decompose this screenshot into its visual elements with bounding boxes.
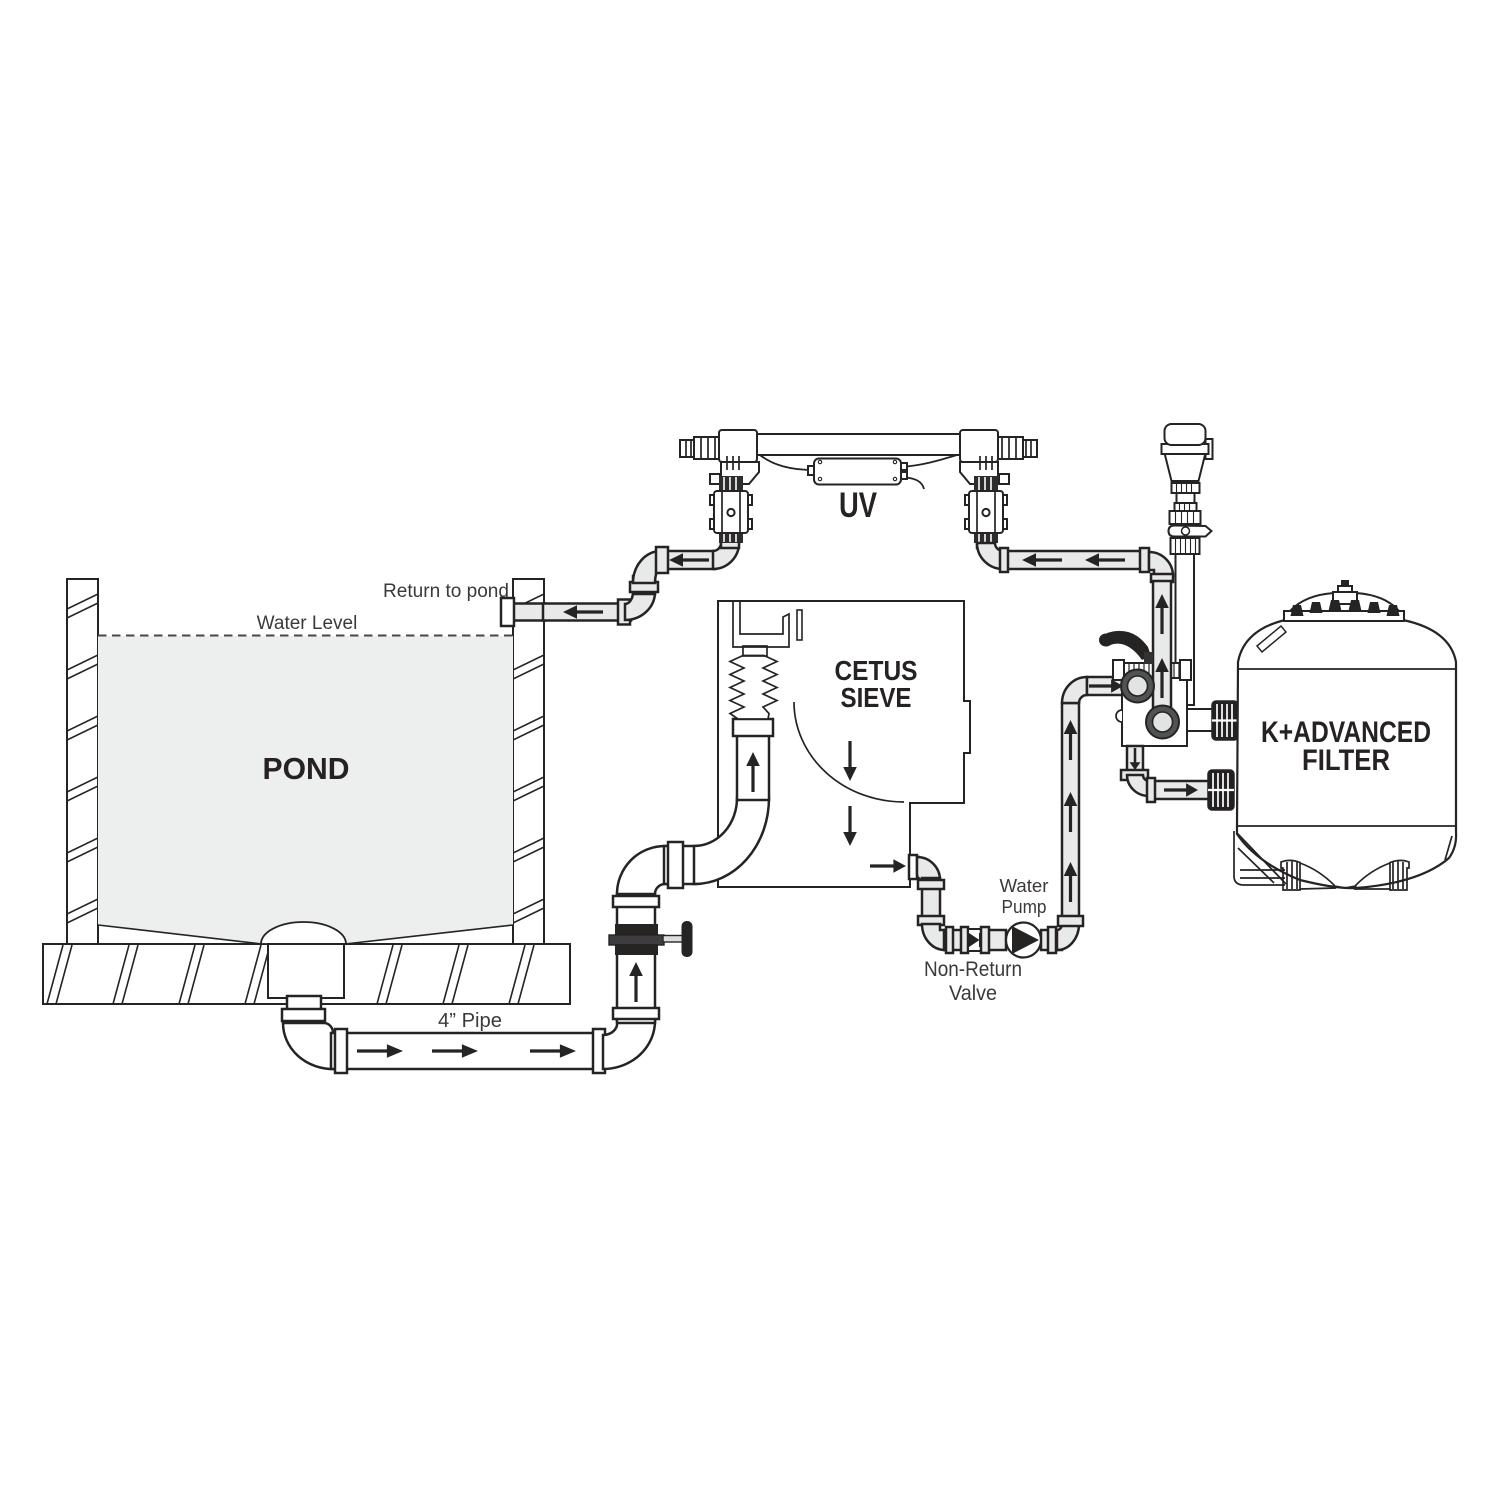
svg-text:Valve: Valve [949, 982, 997, 1005]
svg-text:SIEVE: SIEVE [841, 682, 912, 713]
svg-text:UV: UV [839, 486, 878, 525]
svg-text:Return to pond: Return to pond [383, 580, 509, 602]
svg-text:Water Level: Water Level [257, 613, 358, 634]
svg-text:FILTER: FILTER [1302, 744, 1390, 777]
svg-text:Water: Water [1000, 876, 1049, 896]
svg-text:POND: POND [263, 751, 350, 786]
svg-text:Non-Return: Non-Return [924, 958, 1022, 981]
svg-text:Pump: Pump [1002, 897, 1047, 917]
svg-text:4” Pipe: 4” Pipe [438, 1009, 502, 1032]
